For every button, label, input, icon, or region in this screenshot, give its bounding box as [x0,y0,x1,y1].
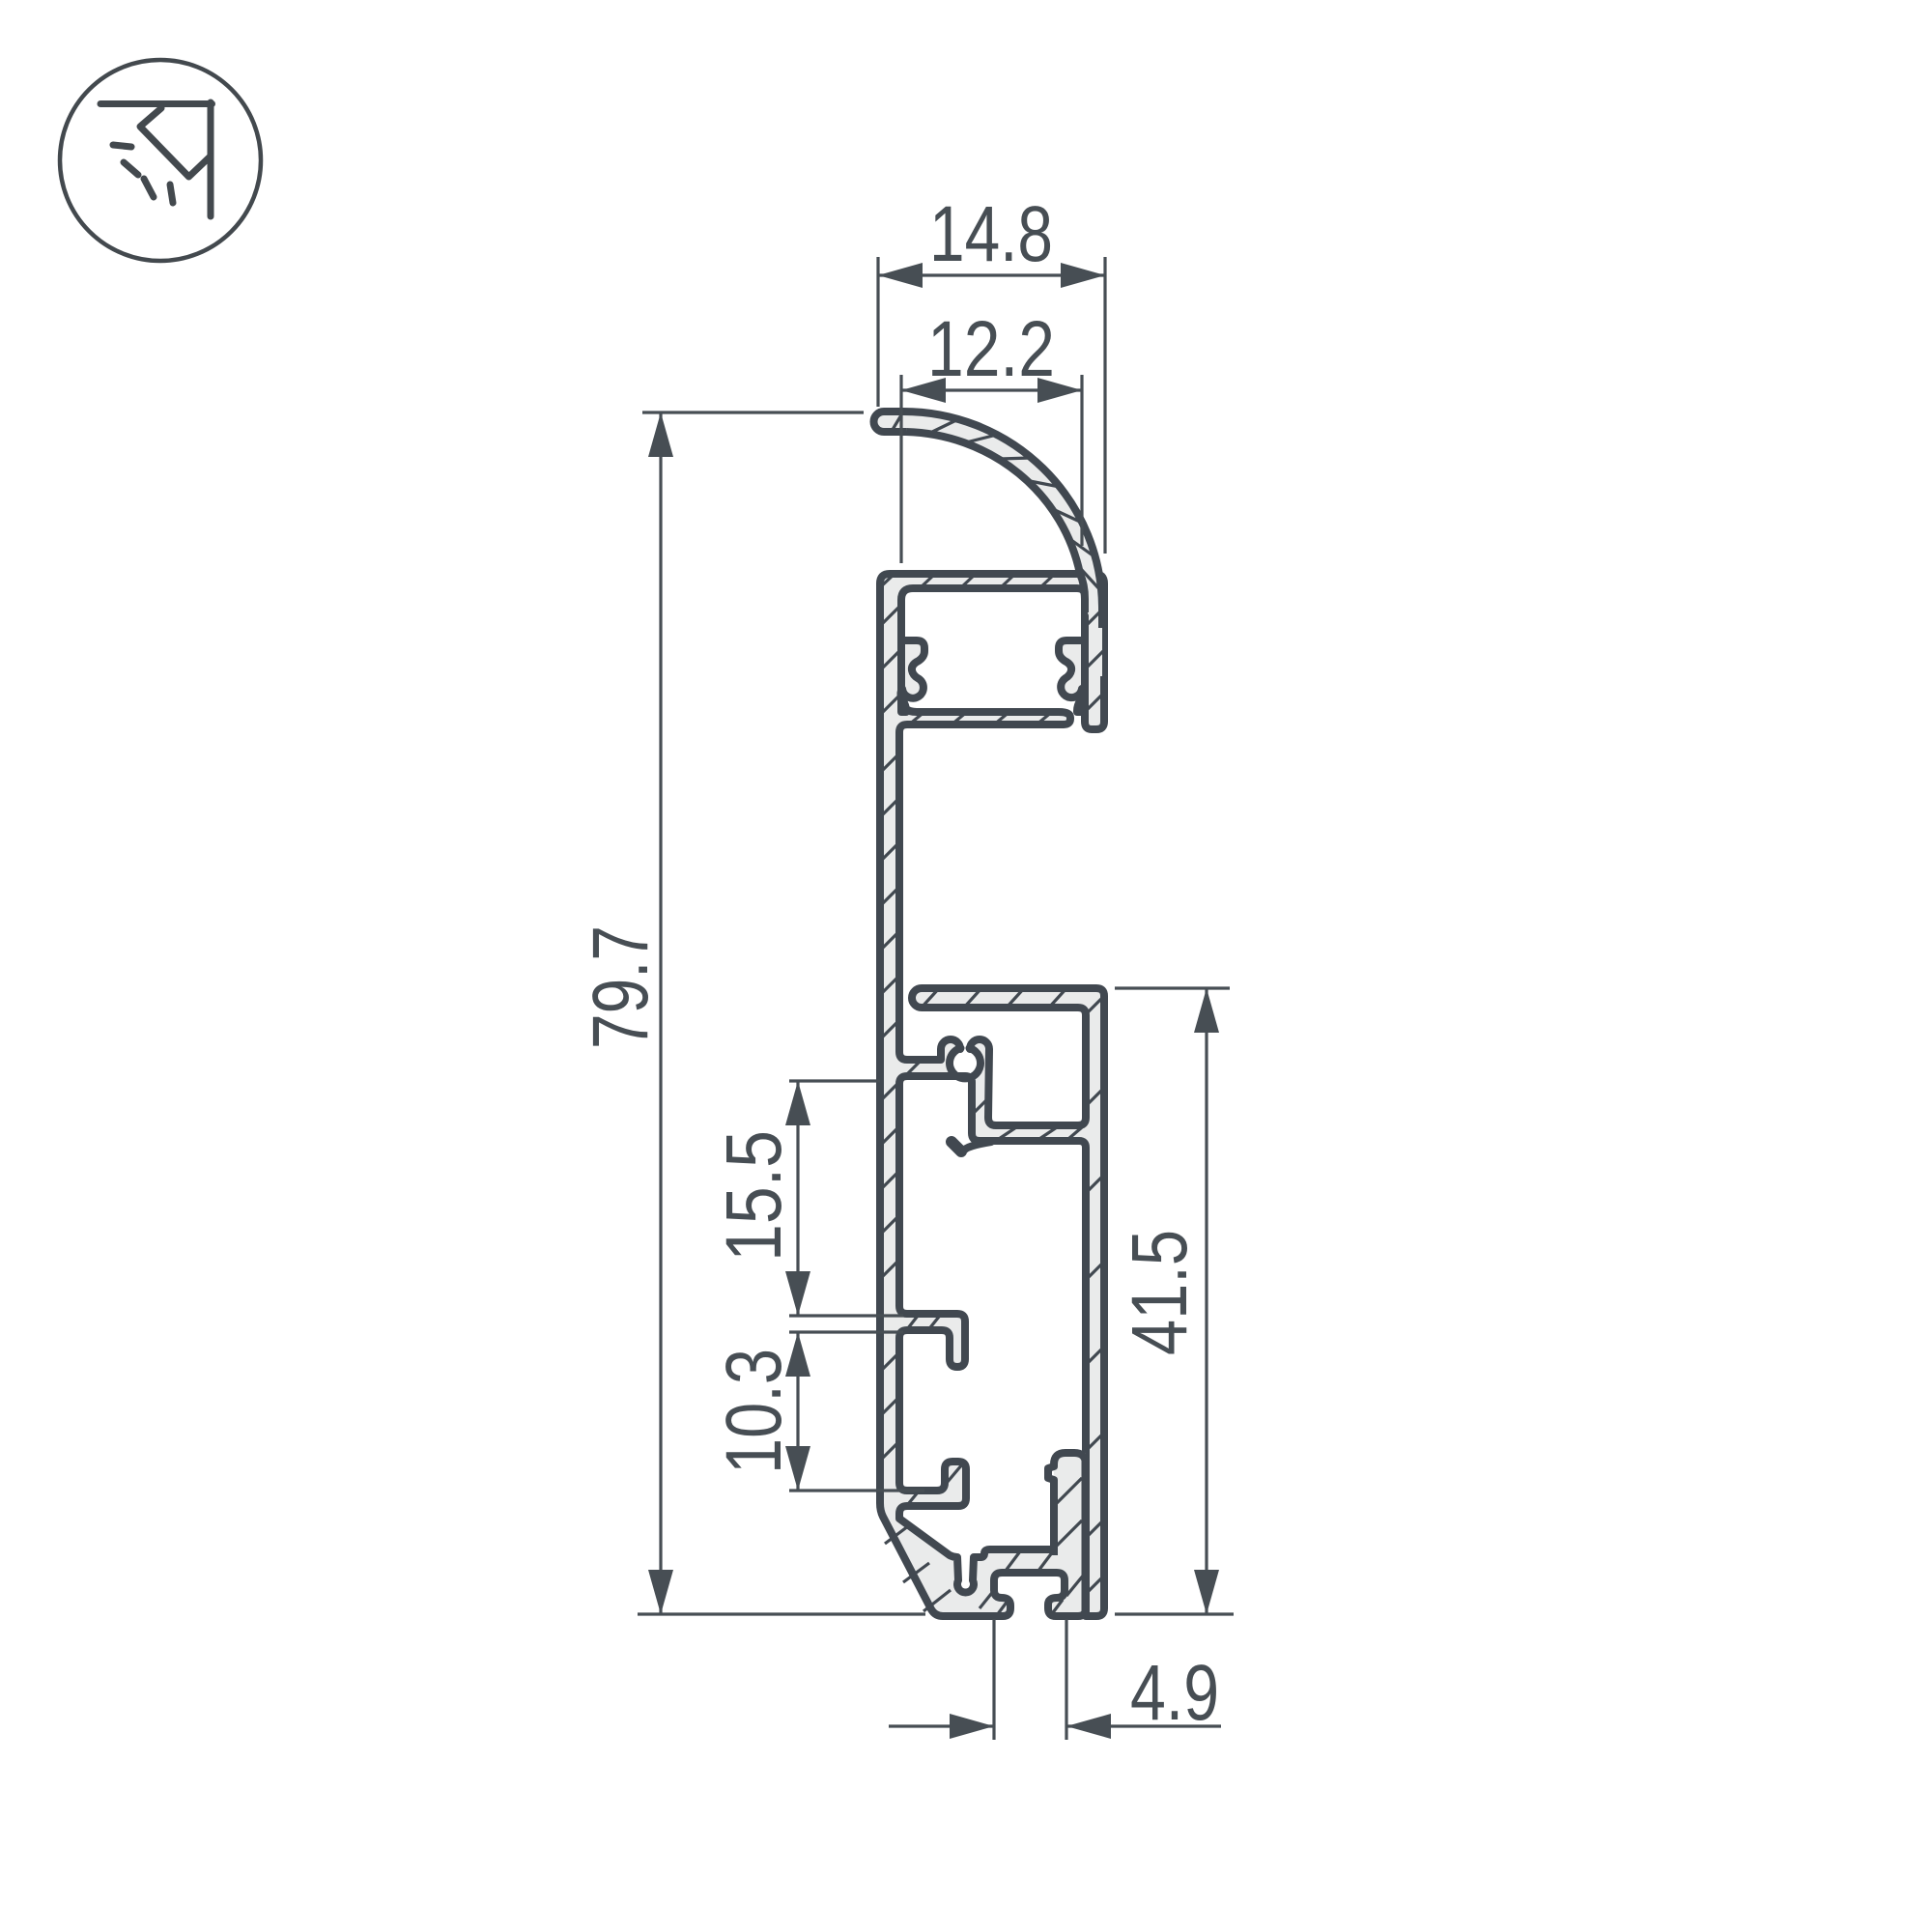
svg-text:10.3: 10.3 [710,1349,798,1474]
svg-text:79.7: 79.7 [577,925,665,1049]
svg-text:4.9: 4.9 [1130,1649,1219,1737]
svg-text:15.5: 15.5 [710,1130,798,1262]
svg-text:14.8: 14.8 [929,190,1053,278]
svg-text:41.5: 41.5 [1116,1230,1204,1355]
svg-text:12.2: 12.2 [927,305,1055,393]
